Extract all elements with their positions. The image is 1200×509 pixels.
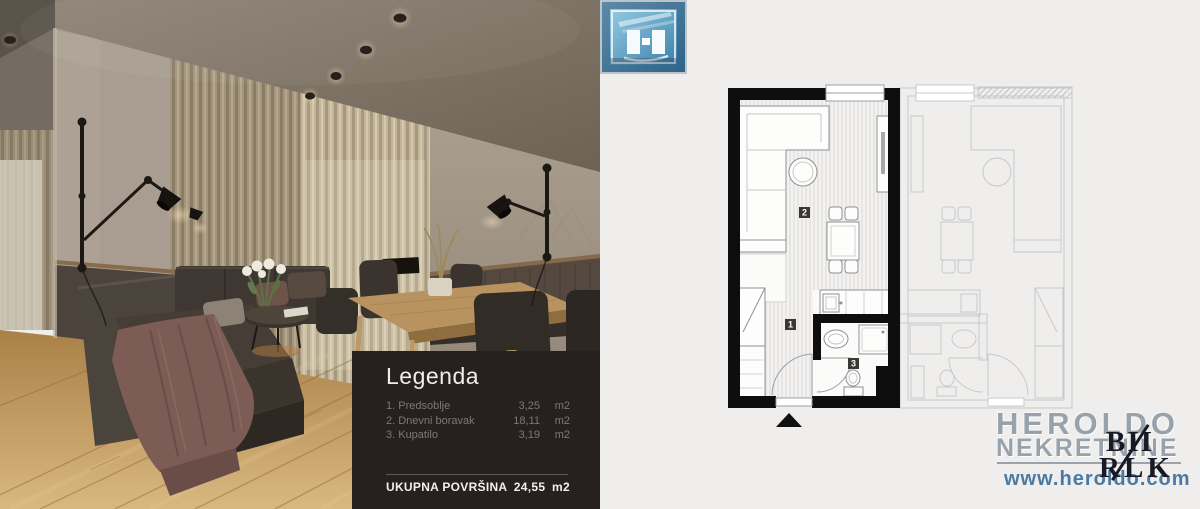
legend-total-unit: m2 [545, 480, 570, 495]
legend-item: 1. Predsoblje 3,25 m2 [386, 399, 570, 414]
legend-item-label: 1. Predsoblje [386, 399, 494, 414]
floor-plan-pane: 2 1 3 [600, 0, 1200, 509]
legend-item-unit: m2 [540, 428, 570, 443]
legend-item-value: 18,11 [494, 414, 540, 429]
brand-divider [997, 462, 1181, 464]
entrance-threshold [776, 398, 812, 406]
legend-item-label: 3. Kupatilo [386, 428, 494, 443]
legend-panel: Legenda 1. Predsoblje 3,25 m2 2. Dnevni … [352, 351, 600, 509]
floor-plan-unit-main: 2 1 3 [728, 85, 900, 427]
agency-name-line2: NEKRETNINE [996, 434, 1179, 463]
legend-item-value: 3,19 [494, 428, 540, 443]
legend-total-row: UKUPNA POVRŠINA 24,55 m2 [386, 480, 570, 495]
legend-items: 1. Predsoblje 3,25 m2 2. Dnevni boravak … [386, 399, 570, 443]
washbasin-symbol [824, 330, 848, 348]
legend-total-value: 24,55 [507, 480, 545, 495]
shower-symbol [859, 325, 890, 354]
legend-item: 3. Kupatilo 3,19 m2 [386, 428, 570, 443]
dining-table-symbol [827, 222, 859, 260]
balcony-hatch [978, 87, 1072, 98]
floor-plan-unit-adjacent [900, 85, 1072, 408]
room-badge-hall: 1 [788, 320, 793, 330]
legend-item-value: 3,25 [494, 399, 540, 414]
legend-item-unit: m2 [540, 399, 570, 414]
entrance-marker-triangle [776, 413, 802, 427]
legend-title: Legenda [386, 361, 570, 391]
real-estate-listing-image: Legenda 1. Predsoblje 3,25 m2 2. Dnevni … [0, 0, 1200, 509]
agency-website: www.heroldo.com [1004, 468, 1191, 491]
legend-item-label: 2. Dnevni boravak [386, 414, 494, 429]
toilet-symbol [844, 387, 863, 396]
legend-item: 2. Dnevni boravak 18,11 m2 [386, 414, 570, 429]
plant-pot [428, 278, 452, 296]
legend-total-label: UKUPNA POVRŠINA [386, 480, 507, 495]
room-badge-bath: 3 [851, 359, 856, 369]
sofa-pillow [287, 271, 327, 300]
agency-logo-icon [600, 0, 687, 74]
legend-divider [386, 474, 568, 475]
legend-item-unit: m2 [540, 414, 570, 429]
interior-photo-pane: Legenda 1. Predsoblje 3,25 m2 2. Dnevni … [0, 0, 600, 509]
room-badge-living: 2 [802, 208, 807, 218]
ceiling-spotlight [4, 36, 16, 44]
